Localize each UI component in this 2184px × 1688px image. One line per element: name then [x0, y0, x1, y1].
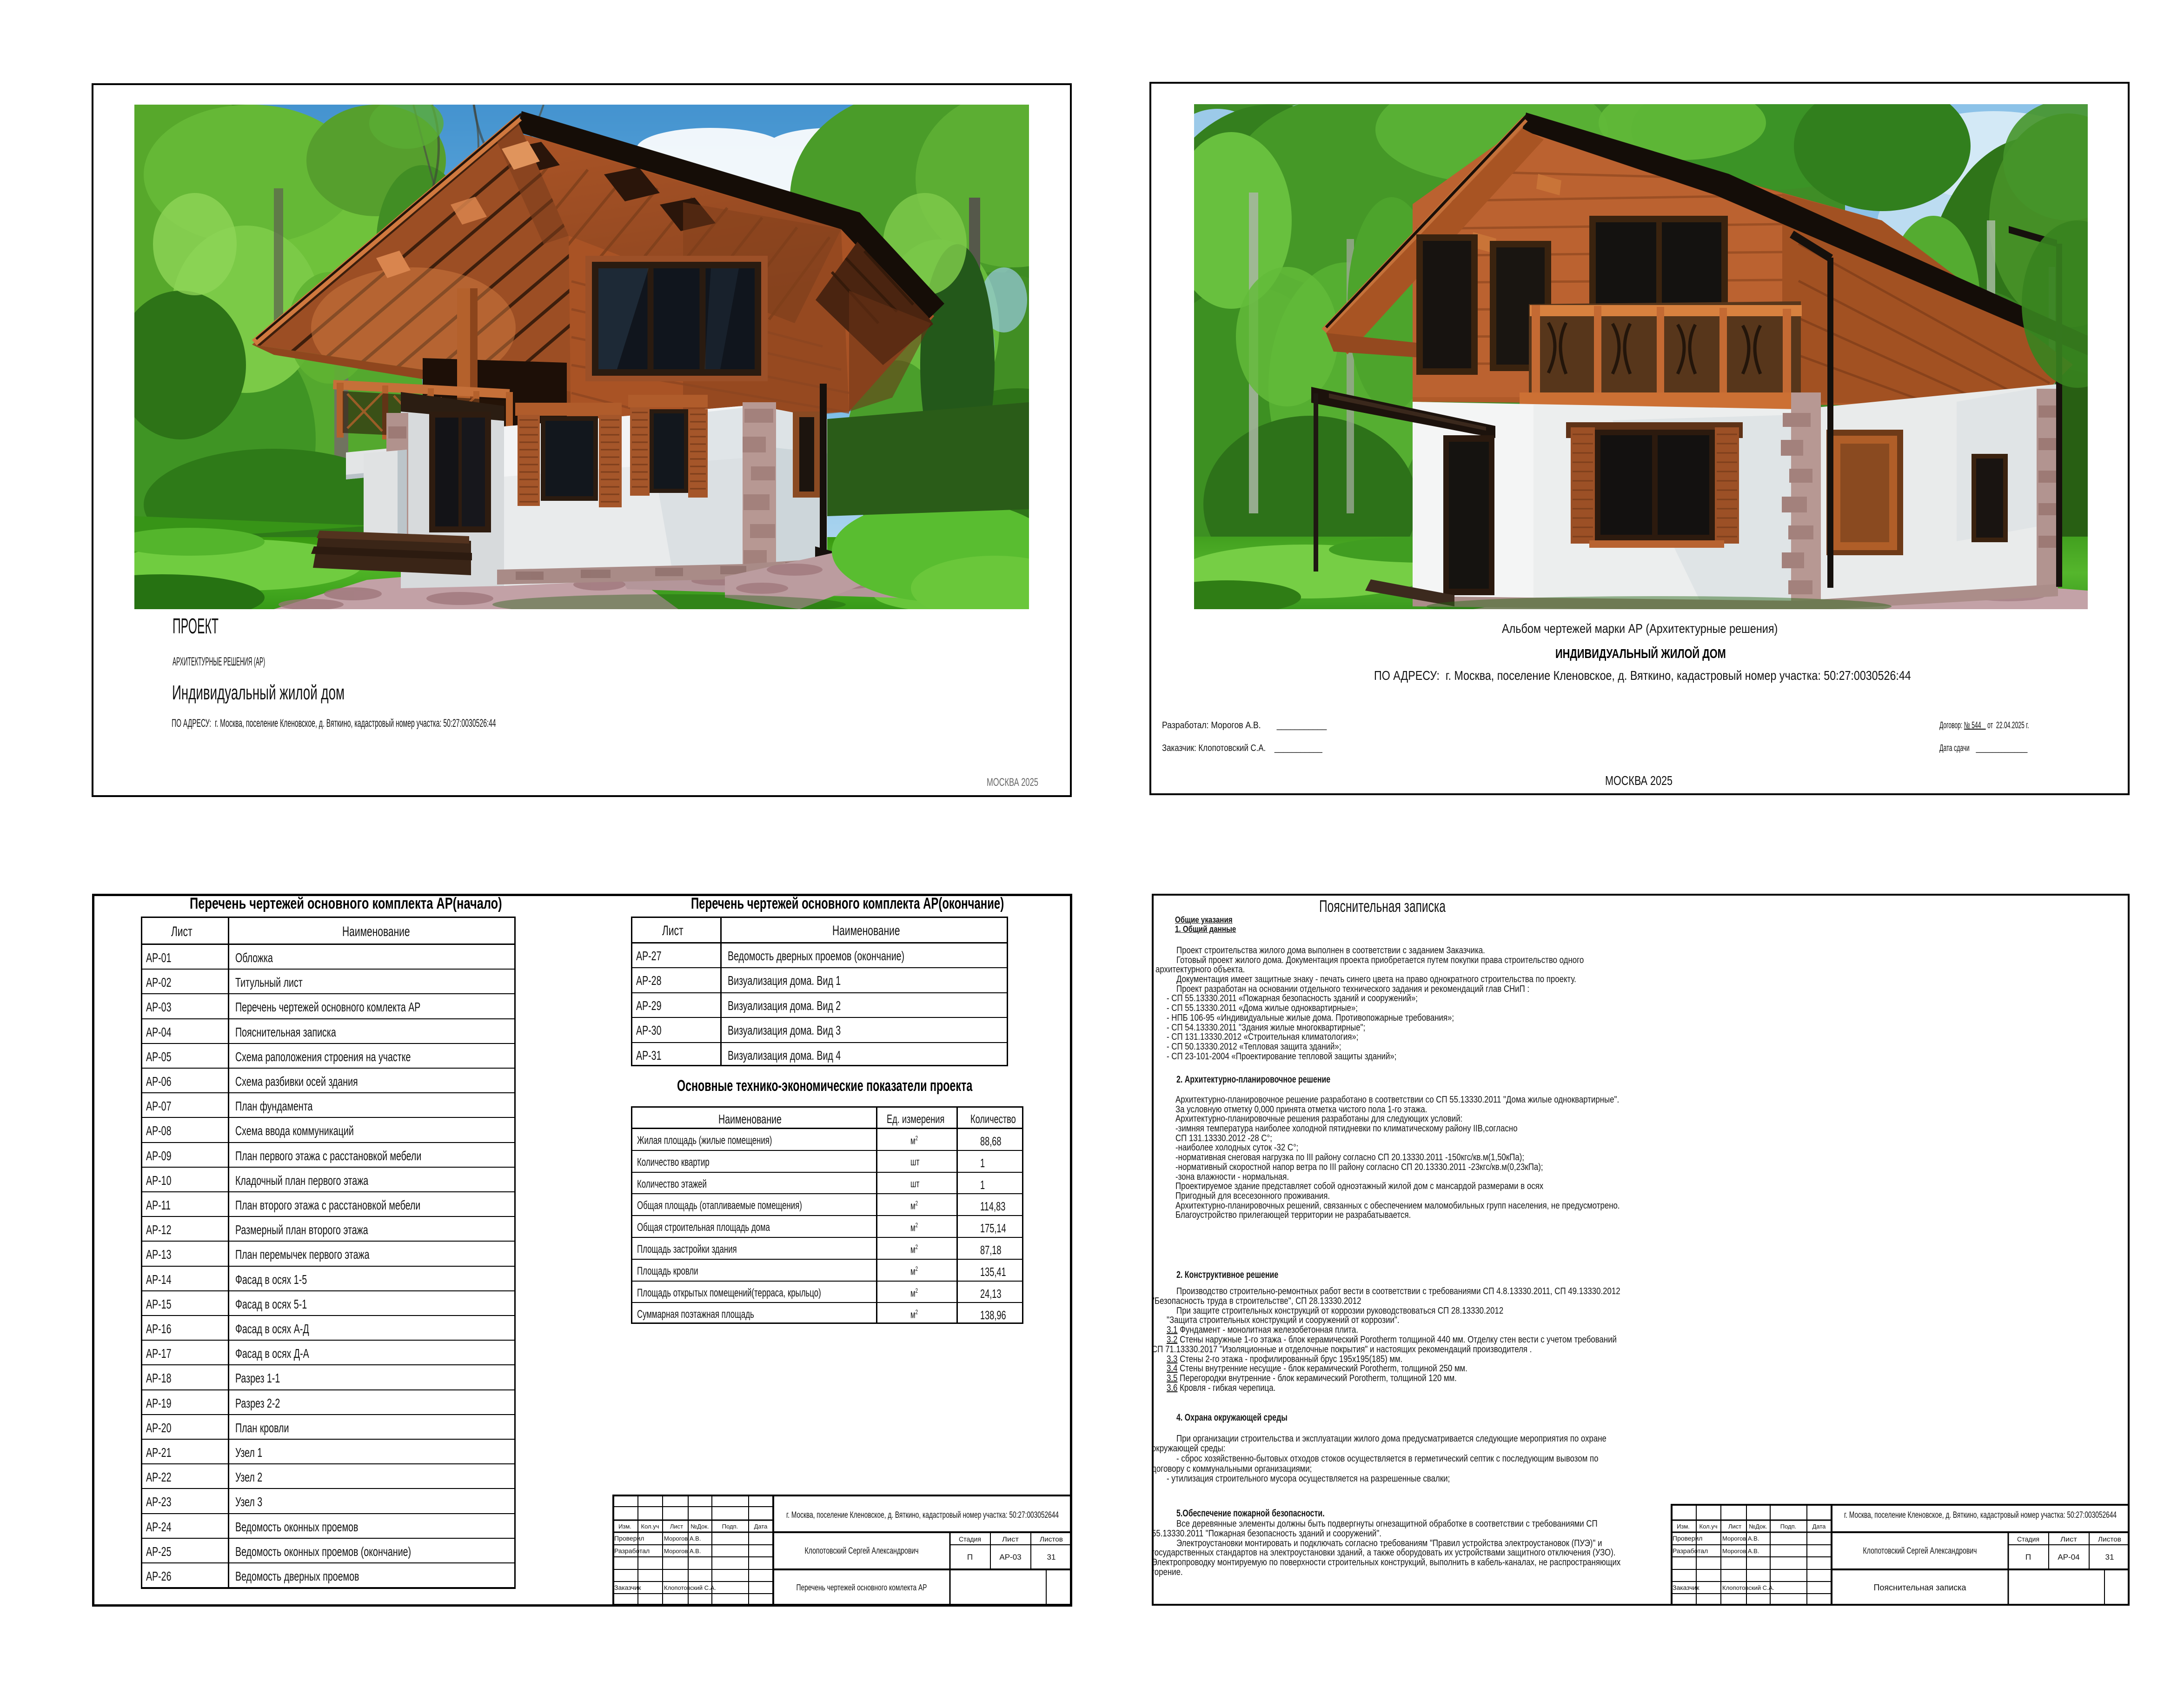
svg-text:Изм.: Изм.: [618, 1523, 631, 1530]
svg-text:Лист: Лист: [1728, 1523, 1741, 1530]
svg-text:Заказчик: Заказчик: [614, 1584, 641, 1591]
svg-text:Клопотовский С.А.: Клопотовский С.А.: [664, 1584, 716, 1591]
svg-text:Морогов А.В.: Морогов А.В.: [664, 1535, 701, 1542]
svg-text:Клопотовский Сергей Александро: Клопотовский Сергей Александрович: [1863, 1546, 1977, 1556]
svg-text:Морогов А.В.: Морогов А.В.: [664, 1548, 701, 1555]
svg-text:Дата: Дата: [754, 1523, 768, 1530]
svg-text:№Док.: №Док.: [690, 1523, 709, 1530]
svg-text:Лист: Лист: [2060, 1535, 2077, 1543]
svg-text:Пояснительная записка: Пояснительная записка: [1873, 1583, 1966, 1592]
svg-text:Дата: Дата: [1812, 1523, 1826, 1530]
svg-text:Листов: Листов: [2098, 1535, 2121, 1543]
svg-text:Перечень чертежей основного ко: Перечень чертежей основного комлекта АР: [797, 1583, 927, 1592]
svg-text:Клопотовский С.А.: Клопотовский С.А.: [1722, 1584, 1774, 1591]
svg-text:П: П: [967, 1553, 973, 1562]
svg-text:Лист: Лист: [1002, 1535, 1019, 1543]
svg-text:Заказчик: Заказчик: [1673, 1584, 1699, 1591]
svg-text:№Док.: №Док.: [1749, 1523, 1767, 1530]
svg-text:Проверил: Проверил: [614, 1535, 644, 1542]
svg-text:Морогов А.В.: Морогов А.В.: [1722, 1535, 1759, 1542]
svg-text:Стадия: Стадия: [2017, 1535, 2039, 1543]
svg-text:Изм.: Изм.: [1677, 1523, 1690, 1530]
svg-text:Стадия: Стадия: [959, 1535, 981, 1543]
svg-text:П: П: [2025, 1553, 2031, 1562]
svg-text:Кол.уч: Кол.уч: [641, 1523, 659, 1530]
svg-text:Подп.: Подп.: [722, 1523, 738, 1530]
svg-text:Подп.: Подп.: [1780, 1523, 1797, 1530]
svg-text:Листов: Листов: [1040, 1535, 1063, 1543]
svg-text:Проверил: Проверил: [1673, 1535, 1702, 1542]
svg-text:АР-04: АР-04: [2058, 1553, 2079, 1562]
svg-text:г. Москва, поселение Кленовско: г. Москва, поселение Кленовское, д. Вятк…: [1844, 1510, 2117, 1520]
svg-text:31: 31: [2105, 1553, 2114, 1562]
svg-text:Кол.уч: Кол.уч: [1699, 1523, 1718, 1530]
svg-text:Лист: Лист: [670, 1523, 683, 1530]
svg-text:Клопотовский Сергей Александро: Клопотовский Сергей Александрович: [805, 1546, 919, 1556]
svg-text:Разработал: Разработал: [614, 1547, 650, 1555]
svg-text:Разработал: Разработал: [1673, 1547, 1708, 1555]
svg-text:31: 31: [1047, 1553, 1056, 1562]
svg-text:г. Москва, поселение Кленовско: г. Москва, поселение Кленовское, д. Вятк…: [786, 1510, 1059, 1520]
svg-text:АР-03: АР-03: [999, 1553, 1021, 1562]
svg-text:Морогов А.В.: Морогов А.В.: [1722, 1548, 1759, 1555]
